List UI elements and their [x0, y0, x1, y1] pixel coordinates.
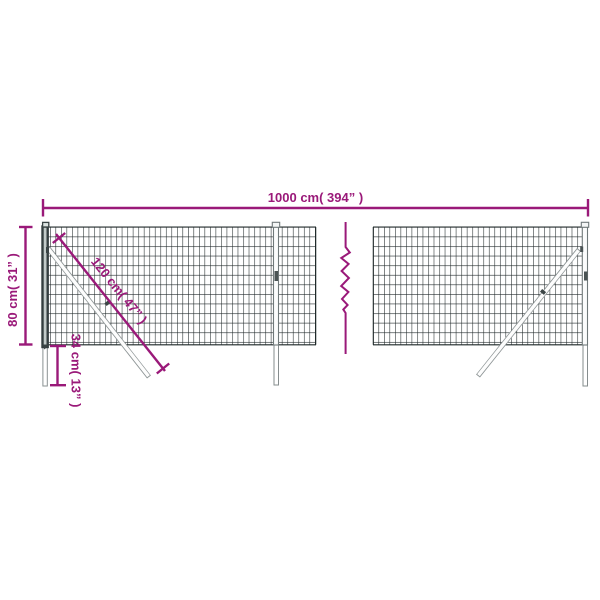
svg-text:1000 cm( 394” ): 1000 cm( 394” ): [268, 190, 363, 205]
svg-text:80 cm( 31” ): 80 cm( 31” ): [5, 253, 20, 327]
svg-text:34 cm( 13” ): 34 cm( 13” ): [69, 334, 84, 408]
